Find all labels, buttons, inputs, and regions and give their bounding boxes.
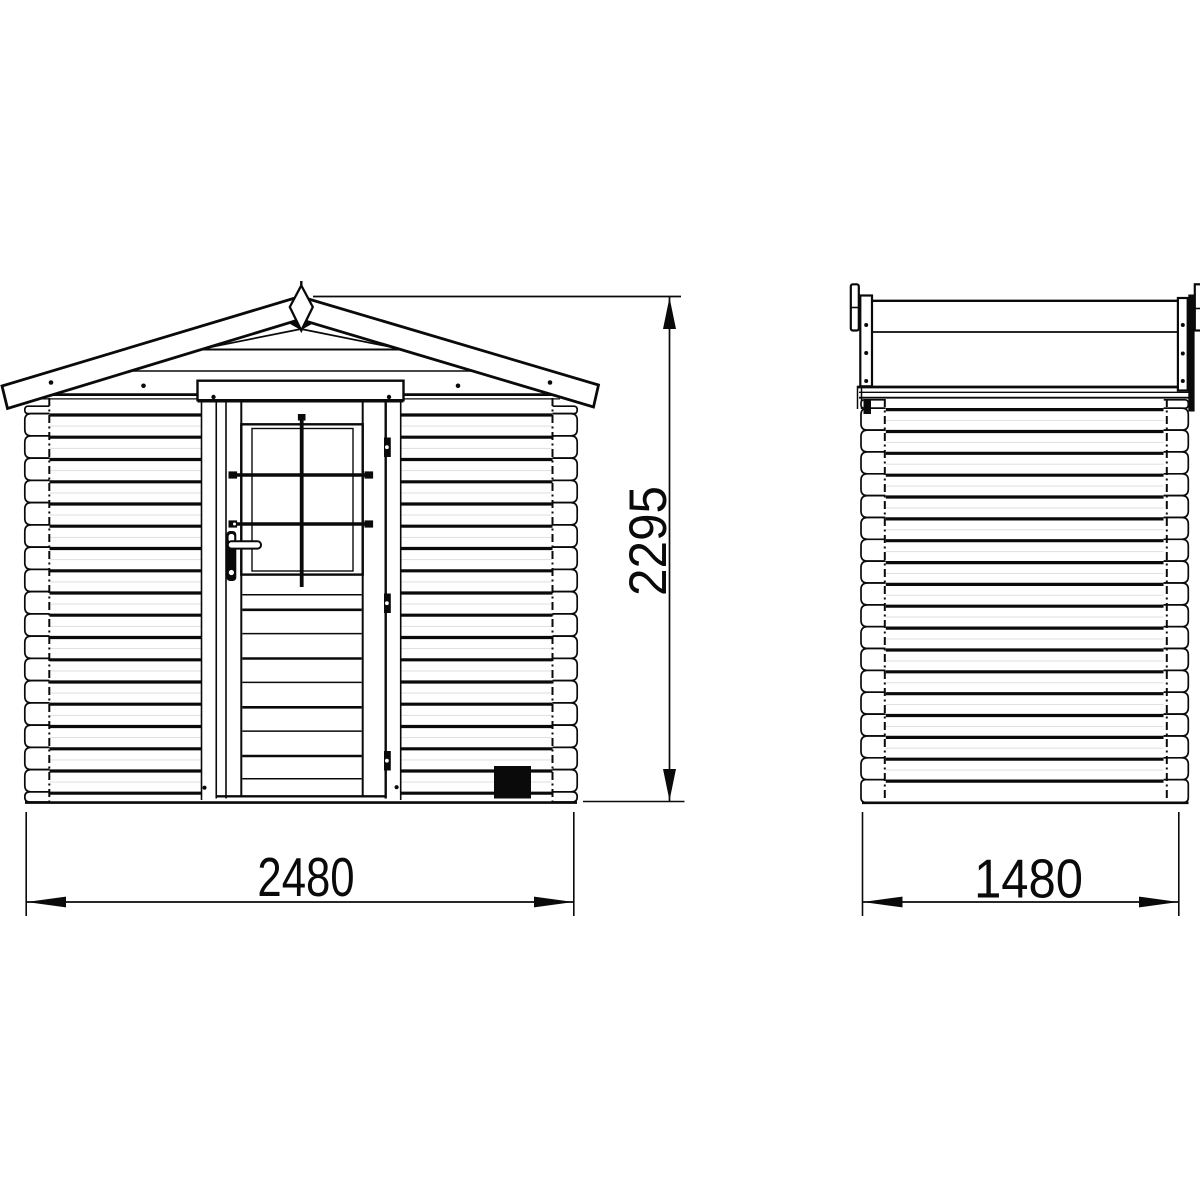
svg-text:2295: 2295 xyxy=(617,486,677,596)
svg-text:1480: 1480 xyxy=(974,849,1083,910)
svg-text:2480: 2480 xyxy=(257,846,354,908)
